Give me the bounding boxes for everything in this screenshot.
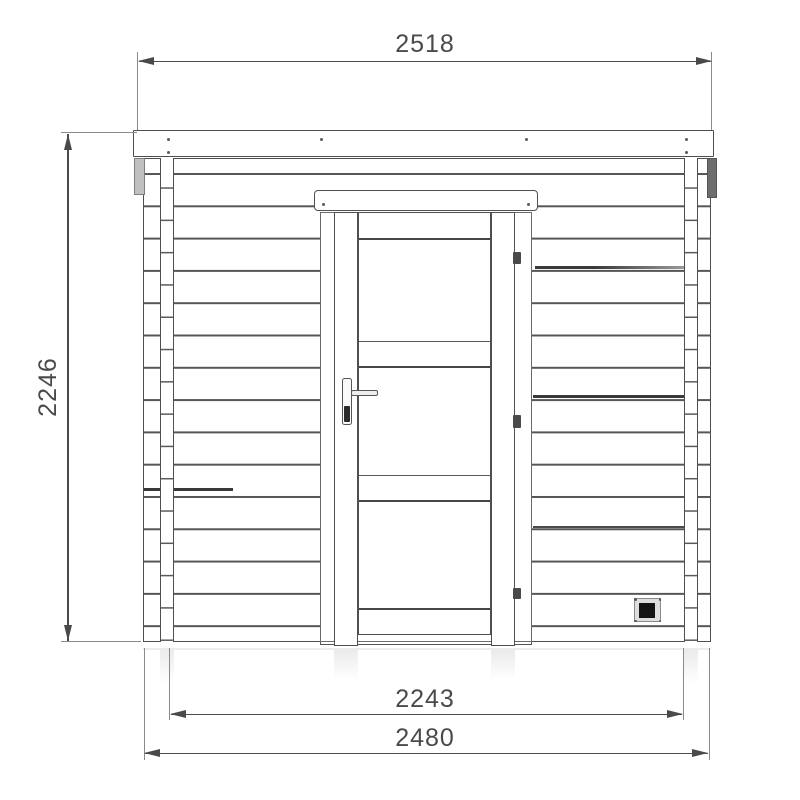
vent-screw-dot: [634, 620, 637, 623]
dim-arrow-left: [144, 749, 160, 757]
roof-fascia: [133, 130, 714, 157]
hinge-mark: [513, 588, 521, 599]
fascia-screw-dot: [167, 138, 170, 141]
fascia-screw-dot: [167, 151, 170, 154]
vent-screw-dot: [634, 598, 637, 601]
dimension-line-top: [139, 61, 711, 63]
door-post-right: [491, 212, 515, 646]
door-rail-middle-2: [359, 475, 490, 502]
reflection-ghost: [684, 650, 698, 684]
fascia-screw-dot: [685, 138, 688, 141]
dimension-line-bottom-inner: [171, 714, 682, 716]
roof-end-right: [707, 158, 717, 198]
dim-arrow-down: [64, 625, 72, 641]
extension-line: [169, 648, 170, 720]
vent-screw-dot: [659, 620, 662, 623]
extension-line: [61, 132, 137, 133]
reflection-ghost: [160, 650, 174, 684]
extension-line: [144, 648, 145, 760]
extension-line: [709, 648, 710, 760]
pediment-screw-dot: [322, 203, 325, 206]
air-vent: [634, 598, 661, 622]
door-leaf: [358, 212, 491, 635]
door-rail-middle-1: [359, 341, 490, 368]
door-keyhole: [344, 406, 350, 422]
shed-technical-drawing: 2518 2246 2243 2480: [0, 0, 800, 800]
dim-arrow-left: [170, 710, 186, 718]
dimension-line-bottom-overall: [145, 753, 708, 755]
reflection-ghost: [334, 650, 358, 680]
dim-arrow-left: [138, 57, 154, 65]
door-handle-lever: [351, 390, 378, 396]
dim-arrow-right: [667, 710, 683, 718]
dimension-label-top-width: 2518: [355, 31, 495, 57]
ground-shadow-line: [143, 648, 711, 650]
hinge-mark: [513, 415, 521, 428]
reflection-ghost: [491, 650, 515, 680]
door-post-left: [334, 212, 358, 646]
dimension-label-inner-width: 2243: [355, 686, 495, 712]
plank-shadow-segment: [533, 395, 698, 398]
dim-arrow-up: [64, 134, 72, 150]
roof-end-left: [134, 158, 145, 195]
pediment-screw-dot: [527, 203, 530, 206]
door-pediment: [314, 190, 538, 211]
plank-shadow-segment: [535, 266, 685, 269]
hinge-mark: [513, 252, 521, 264]
door-rail-bottom: [359, 608, 490, 610]
fascia-screw-dot: [685, 151, 688, 154]
corner-batten-right: [684, 158, 698, 642]
extension-line: [61, 641, 141, 642]
extension-line: [683, 648, 684, 720]
corner-batten-left: [160, 158, 174, 642]
dim-arrow-right: [696, 57, 712, 65]
air-vent-opening: [639, 603, 655, 618]
fascia-screw-dot: [320, 138, 323, 141]
plank-shadow-segment: [144, 488, 233, 491]
dimension-line-left: [67, 134, 69, 641]
dimension-label-left-height: 2246: [35, 317, 61, 457]
vent-screw-dot: [659, 598, 662, 601]
fascia-screw-dot: [525, 138, 528, 141]
dimension-label-overall-width: 2480: [355, 725, 495, 751]
dim-arrow-right: [692, 749, 708, 757]
plank-shadow-segment: [533, 526, 698, 528]
door-rail-top: [359, 238, 490, 240]
